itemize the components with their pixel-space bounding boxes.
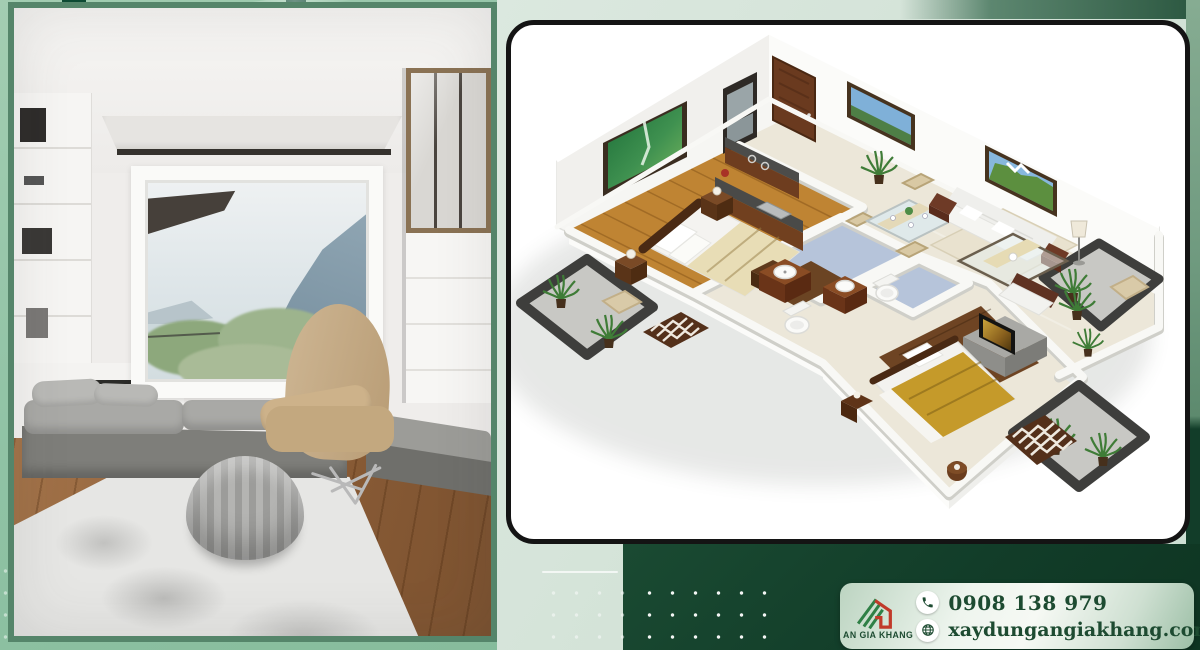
dot-grid-decoration <box>542 582 638 646</box>
promo-banner: AN GIA KHANG 0908 138 979 <box>0 0 1200 650</box>
interior-photo <box>8 2 497 642</box>
house-logo-icon <box>855 593 901 629</box>
dot-grid-decoration <box>638 582 778 646</box>
brand-name: AN GIA KHANG <box>843 630 913 641</box>
phone-row[interactable]: 0908 138 979 <box>916 591 1200 615</box>
top-dark-band <box>900 0 1200 19</box>
vignette <box>14 8 491 636</box>
phone-icon <box>916 591 939 614</box>
floor-plan-card <box>506 20 1190 544</box>
dot-grid-decoration <box>0 560 10 650</box>
website-row[interactable]: xaydungangiakhang.com <box>916 619 1200 642</box>
phone-number: 0908 138 979 <box>948 591 1107 615</box>
website-url: xaydungangiakhang.com <box>948 619 1200 641</box>
light-streak-decoration <box>542 571 618 573</box>
contact-bar: AN GIA KHANG 0908 138 979 <box>840 583 1194 649</box>
company-logo: AN GIA KHANG <box>840 591 916 641</box>
globe-icon <box>916 619 939 642</box>
apartment-3d-floor-plan <box>511 25 1185 539</box>
